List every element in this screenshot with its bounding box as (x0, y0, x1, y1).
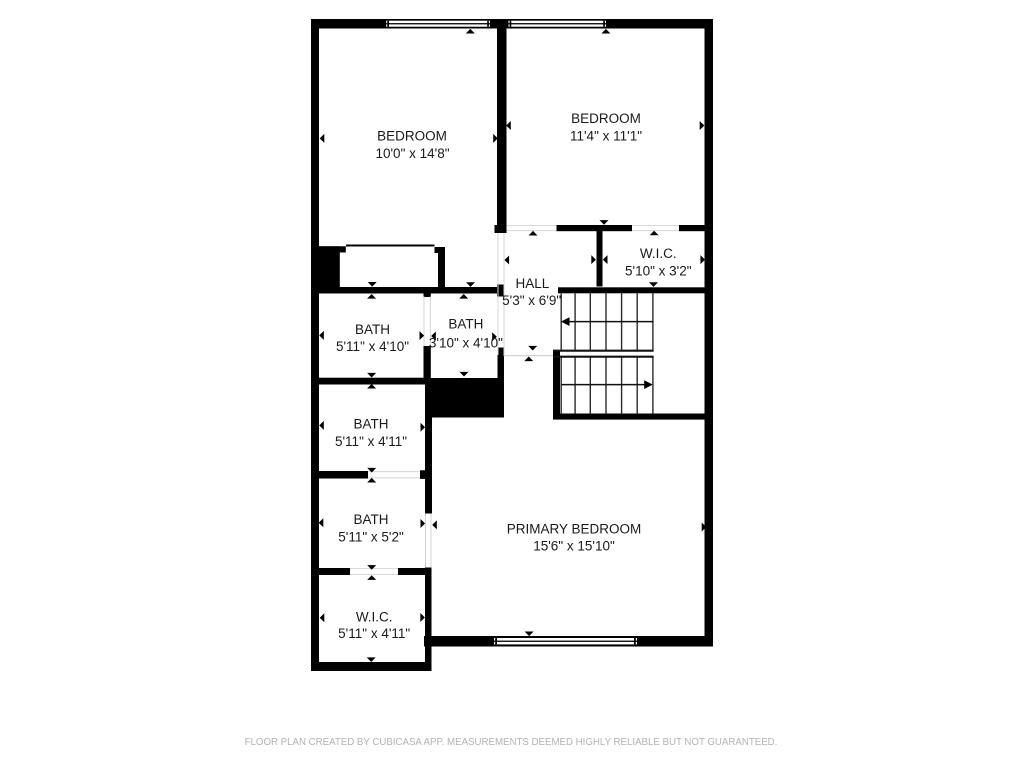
svg-text:BEDROOM: BEDROOM (571, 111, 641, 126)
svg-text:BATH: BATH (353, 417, 388, 432)
svg-text:W.I.C.: W.I.C. (640, 246, 677, 261)
svg-text:3'10" x 4'10": 3'10" x 4'10" (429, 336, 503, 351)
svg-text:FLOOR PLAN CREATED BY CUBICASA: FLOOR PLAN CREATED BY CUBICASA APP. MEAS… (245, 737, 778, 748)
svg-text:PRIMARY BEDROOM: PRIMARY BEDROOM (507, 522, 642, 537)
svg-text:10'0" x 14'8": 10'0" x 14'8" (375, 146, 449, 161)
svg-text:5'11" x 5'2": 5'11" x 5'2" (338, 530, 404, 545)
svg-text:HALL: HALL (516, 276, 550, 291)
svg-text:5'10" x 3'2": 5'10" x 3'2" (625, 264, 692, 279)
svg-text:W.I.C.: W.I.C. (356, 610, 393, 625)
svg-text:BATH: BATH (448, 317, 483, 332)
svg-text:5'11" x 4'10": 5'11" x 4'10" (336, 339, 409, 354)
svg-text:BEDROOM: BEDROOM (377, 129, 447, 144)
svg-text:BATH: BATH (355, 322, 390, 337)
svg-text:15'6" x 15'10": 15'6" x 15'10" (533, 539, 615, 554)
svg-text:5'11" x 4'11": 5'11" x 4'11" (338, 626, 410, 641)
svg-text:11'4" x 11'1": 11'4" x 11'1" (570, 129, 642, 144)
svg-text:5'11" x 4'11": 5'11" x 4'11" (335, 434, 407, 449)
svg-text:5'3" x 6'9": 5'3" x 6'9" (502, 293, 561, 308)
svg-text:BATH: BATH (353, 512, 388, 527)
